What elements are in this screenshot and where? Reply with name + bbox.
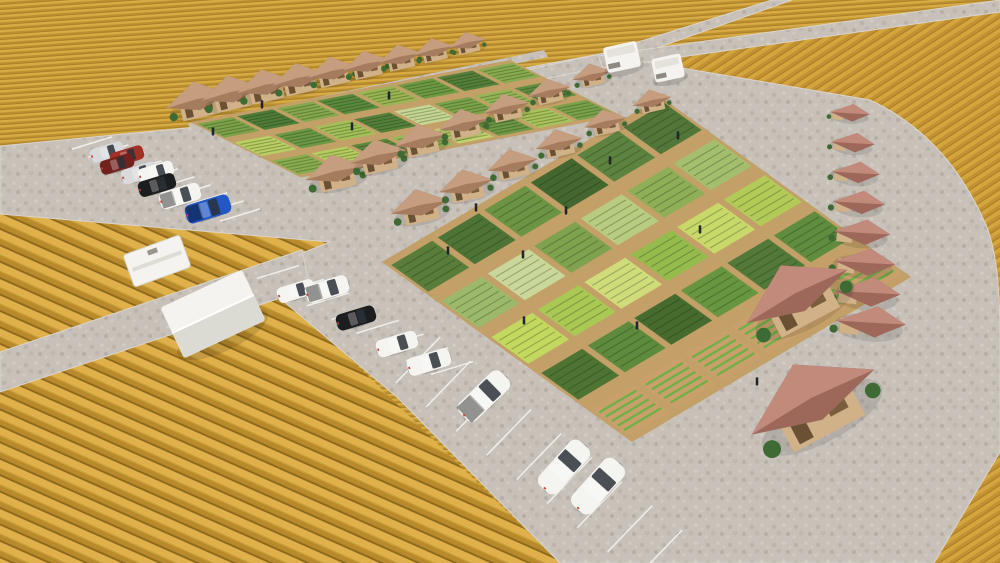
person-head (212, 127, 215, 130)
person-head (636, 321, 639, 324)
person-head (261, 100, 264, 103)
person-body (699, 227, 702, 233)
farm-community-3d-render (0, 0, 1000, 563)
person (699, 225, 702, 233)
person (565, 206, 568, 214)
person (212, 127, 215, 135)
person (522, 250, 525, 258)
person-head (447, 246, 450, 249)
person-head (699, 225, 702, 228)
person (636, 321, 639, 329)
person-body (565, 208, 568, 214)
person-body (261, 102, 264, 108)
person-head (522, 250, 525, 253)
person (447, 246, 450, 254)
person (261, 100, 264, 108)
scene-canvas (0, 0, 1000, 563)
person-body (756, 379, 759, 385)
person-body (447, 248, 450, 254)
person (677, 131, 680, 139)
person-body (677, 133, 680, 139)
person-body (609, 158, 612, 164)
person-head (351, 122, 354, 125)
person-body (212, 129, 215, 135)
person (351, 122, 354, 130)
person-head (523, 316, 526, 319)
person-head (677, 131, 680, 134)
person-body (523, 318, 526, 324)
person-head (609, 156, 612, 159)
person-head (756, 377, 759, 380)
person-head (388, 91, 391, 94)
person-head (475, 203, 478, 206)
person-body (475, 205, 478, 211)
person (756, 377, 759, 385)
person-body (388, 93, 391, 99)
person (609, 156, 612, 164)
person-body (636, 323, 639, 329)
person (388, 91, 391, 99)
person (523, 316, 526, 324)
person-body (522, 252, 525, 258)
person (475, 203, 478, 211)
person-head (565, 206, 568, 209)
person-body (351, 124, 354, 130)
